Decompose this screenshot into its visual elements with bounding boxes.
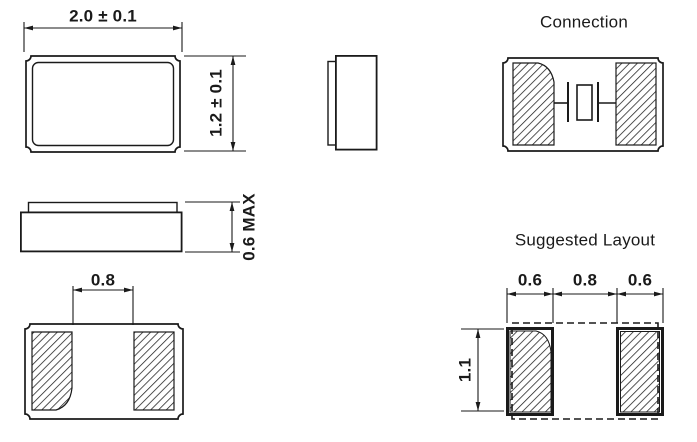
bottom-view-pad-left <box>32 332 72 410</box>
top-view-width-dimension <box>24 22 182 52</box>
end-view-body <box>336 56 377 150</box>
top-view-width-label: 2.0 ± 0.1 <box>69 8 137 25</box>
end-view <box>328 56 377 150</box>
top-view-outline <box>26 56 180 152</box>
layout-right-pad-width-label: 0.6 <box>628 272 652 289</box>
top-view-lid-outline <box>33 63 174 146</box>
crystal-package-drawing: 2.0 ± 0.1 1.2 ± 0.1 Connection 0.6 MAX 0… <box>0 0 697 442</box>
connection-view <box>503 58 663 151</box>
side-view-height-label: 0.6 MAX <box>241 193 258 261</box>
layout-pad-left-hatch <box>510 331 551 412</box>
layout-gap-label: 0.8 <box>573 272 597 289</box>
side-view-body <box>21 212 182 251</box>
layout-width-dimensions <box>507 288 663 323</box>
connection-pad-left <box>513 63 554 145</box>
bottom-view <box>25 286 183 419</box>
layout-pad-right-hatch <box>621 332 660 413</box>
drawing-linework <box>0 0 697 442</box>
connection-pad-right <box>616 63 656 145</box>
layout-left-pad-width-label: 0.6 <box>518 272 542 289</box>
layout-title: Suggested Layout <box>515 232 655 249</box>
bottom-view-gap-label: 0.8 <box>91 272 115 289</box>
crystal-symbol <box>554 82 616 122</box>
layout-pad-height-label: 1.1 <box>457 358 474 382</box>
bottom-view-gap-dimension <box>73 286 133 325</box>
bottom-view-pad-right <box>134 332 174 410</box>
top-view-height-label: 1.2 ± 0.1 <box>208 69 225 137</box>
layout-view <box>461 288 663 419</box>
connection-title: Connection <box>540 14 628 31</box>
side-view-lid <box>29 203 178 213</box>
side-view-height-dimension <box>185 202 240 252</box>
side-view <box>21 202 240 252</box>
